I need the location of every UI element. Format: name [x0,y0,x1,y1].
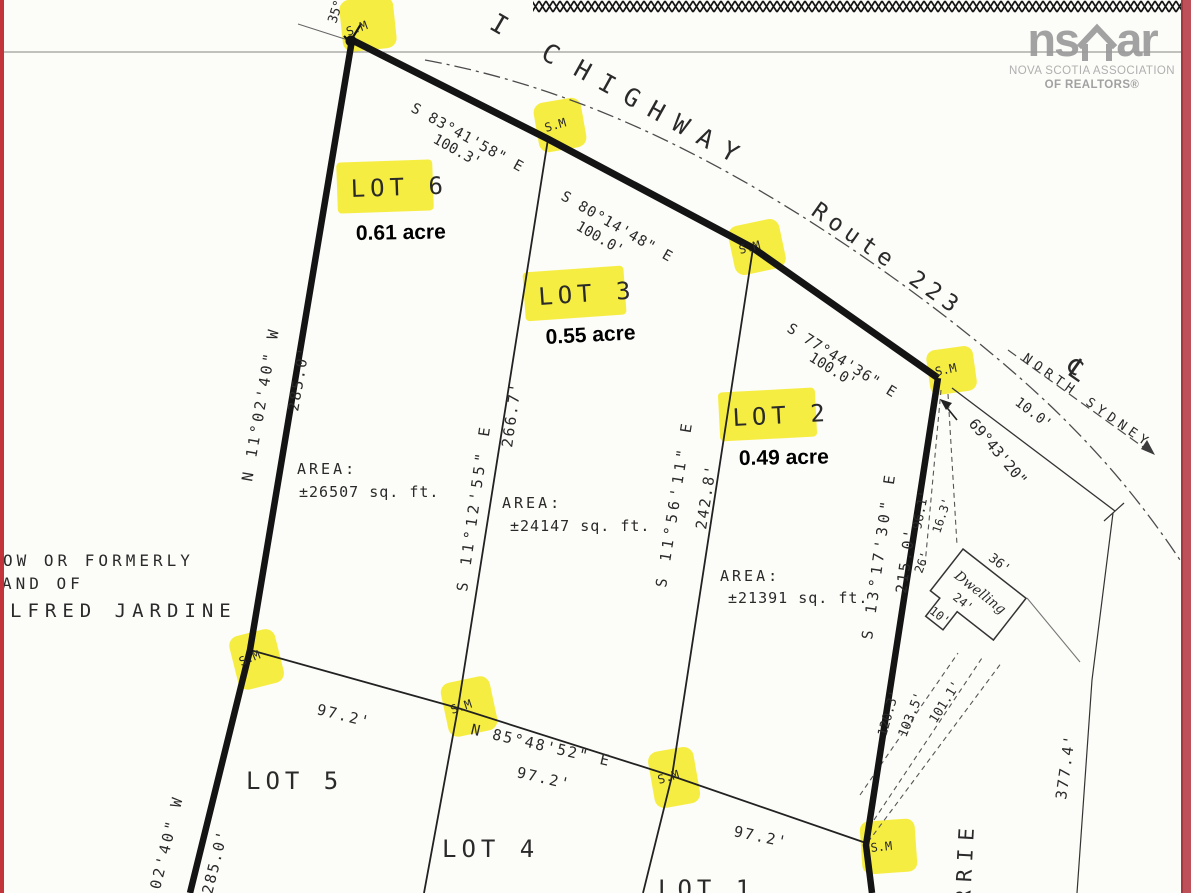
sm-label-8: S.M [870,839,893,855]
lot1-label: LOT 1 [658,875,755,893]
lot3-acre: 0.55 acre [545,321,636,349]
adjoiner-line2: AND OF [2,574,84,593]
lot5-label: LOT 5 [246,767,343,795]
scan-border-right [1181,0,1191,893]
lot6-label: LOT 6 [350,172,448,203]
logo-ar-text: ar [1116,16,1156,63]
logo-association-line1: NOVA SCOTIA ASSOCIATION [1008,65,1176,77]
lot3-area-title: AREA: [502,494,562,512]
survey-plan-canvas: 36' Dwelling 24' 10' I C HIGHWAY Route 2… [0,0,1191,893]
lot6-area-value: ±26507 sq. ft. [299,483,439,501]
hatch-band [533,0,1185,13]
house-icon [1076,19,1118,63]
adjoiner-line3: LFRED JARDINE [10,600,237,622]
logo-association-line2: OF REALTORS® [1045,79,1140,91]
lot6-acre: 0.61 acre [356,220,446,245]
lot2-area-title: AREA: [720,567,780,585]
lot6-area-title: AREA: [297,460,357,478]
logo-ns-text: ns [1027,16,1078,63]
adjoiner-line1: OW OR FORMERLY [3,551,194,570]
nsar-logo: ns ar NOVA SCOTIA ASSOCIATION OF REALTOR… [1008,16,1176,91]
lot3-area-value: ±24147 sq. ft. [510,517,650,535]
lot2-acre: 0.49 acre [739,445,829,470]
lot2-label: LOT 2 [732,399,831,432]
lot2-area-value: ±21391 sq. ft. [728,589,868,607]
scanned-survey-plan: { "logo": { "ns": "ns", "ar": "ar", "ass… [0,0,1191,893]
adjoiner-right-name: RRIE [951,820,979,893]
lot4-label: LOT 4 [442,835,539,863]
scan-border-left [0,0,4,893]
